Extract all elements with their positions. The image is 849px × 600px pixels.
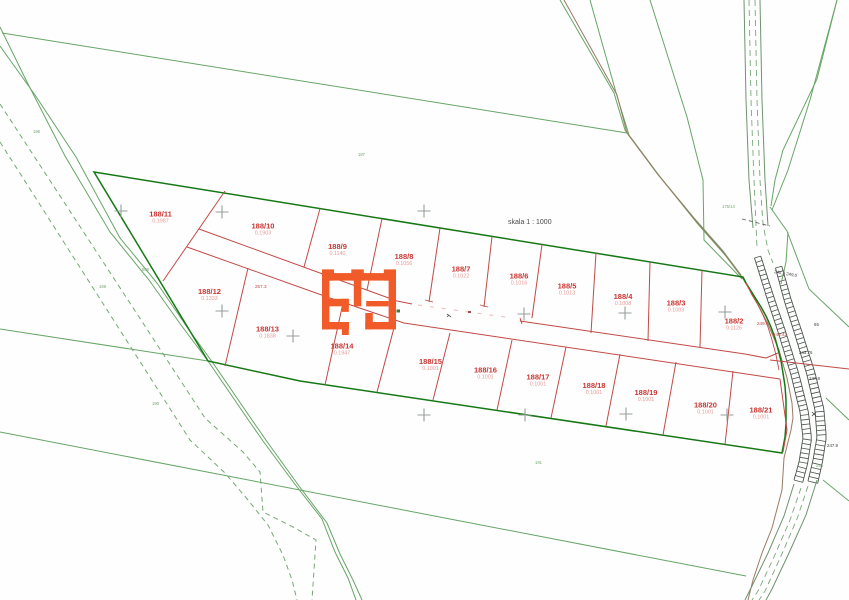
svg-text:188/4: 188/4 xyxy=(614,292,634,301)
svg-text:188/11: 188/11 xyxy=(149,210,172,219)
svg-text:188/3: 188/3 xyxy=(667,299,686,308)
svg-text:0.1001: 0.1001 xyxy=(586,390,603,396)
svg-text:188/21: 188/21 xyxy=(750,406,773,415)
svg-text:65: 65 xyxy=(814,322,819,327)
svg-text:188/8: 188/8 xyxy=(395,252,414,261)
svg-text:247.9: 247.9 xyxy=(827,443,839,448)
svg-text:247.8: 247.8 xyxy=(809,376,821,381)
svg-text:188/2: 188/2 xyxy=(725,317,744,326)
svg-text:187: 187 xyxy=(358,152,366,157)
svg-text:191: 191 xyxy=(535,460,543,465)
svg-text:246: 246 xyxy=(816,463,824,468)
svg-text:188/12: 188/12 xyxy=(198,287,221,296)
svg-text:0.1947: 0.1947 xyxy=(334,350,351,356)
svg-text:188/19: 188/19 xyxy=(635,388,658,397)
svg-text:196: 196 xyxy=(33,129,41,134)
svg-text:0.1003: 0.1003 xyxy=(668,307,685,313)
svg-text:0.1001: 0.1001 xyxy=(477,374,494,380)
svg-text:257.3: 257.3 xyxy=(255,284,267,289)
svg-text:188/10: 188/10 xyxy=(252,222,275,231)
svg-text:0.1001: 0.1001 xyxy=(753,414,770,420)
svg-text:188/14: 188/14 xyxy=(331,342,355,351)
svg-text:0.1001: 0.1001 xyxy=(697,409,714,415)
svg-text:188/16: 188/16 xyxy=(474,366,497,375)
svg-text:0.1140: 0.1140 xyxy=(329,251,345,257)
svg-text:243.76: 243.76 xyxy=(799,350,813,355)
svg-text:188/9: 188/9 xyxy=(328,242,347,251)
svg-text:0.1001: 0.1001 xyxy=(422,366,439,372)
svg-text:0.1126: 0.1126 xyxy=(726,325,742,331)
svg-text:188/17: 188/17 xyxy=(527,373,550,382)
svg-text:0.1016: 0.1016 xyxy=(511,280,528,286)
svg-text:169: 169 xyxy=(99,284,107,289)
svg-text:0.1013: 0.1013 xyxy=(559,290,576,296)
svg-text:188/6: 188/6 xyxy=(510,272,529,281)
svg-text:606: 606 xyxy=(142,267,150,272)
svg-text:0.1987: 0.1987 xyxy=(152,218,169,224)
svg-text:175/14: 175/14 xyxy=(722,204,735,209)
svg-text:188/20: 188/20 xyxy=(694,401,717,410)
svg-text:skala 1 : 1000: skala 1 : 1000 xyxy=(508,219,552,226)
svg-text:0.1008: 0.1008 xyxy=(615,301,632,307)
svg-text:0.1056: 0.1056 xyxy=(396,261,413,267)
svg-text:188/13: 188/13 xyxy=(256,325,279,334)
svg-text:188/7: 188/7 xyxy=(452,265,471,274)
svg-text:188/15: 188/15 xyxy=(419,357,442,366)
svg-text:0.1001: 0.1001 xyxy=(638,397,655,403)
svg-text:248.42: 248.42 xyxy=(773,332,787,337)
svg-text:0.1001: 0.1001 xyxy=(530,381,547,387)
svg-text:190: 190 xyxy=(152,401,160,406)
svg-text:0.1333: 0.1333 xyxy=(201,296,218,302)
svg-text:0.1903: 0.1903 xyxy=(255,230,272,236)
svg-text:0.1022: 0.1022 xyxy=(453,273,470,279)
svg-text:249.5: 249.5 xyxy=(757,321,769,326)
svg-text:0.1838: 0.1838 xyxy=(259,333,276,339)
svg-text:188/18: 188/18 xyxy=(583,381,606,390)
svg-text:188/5: 188/5 xyxy=(558,282,577,291)
